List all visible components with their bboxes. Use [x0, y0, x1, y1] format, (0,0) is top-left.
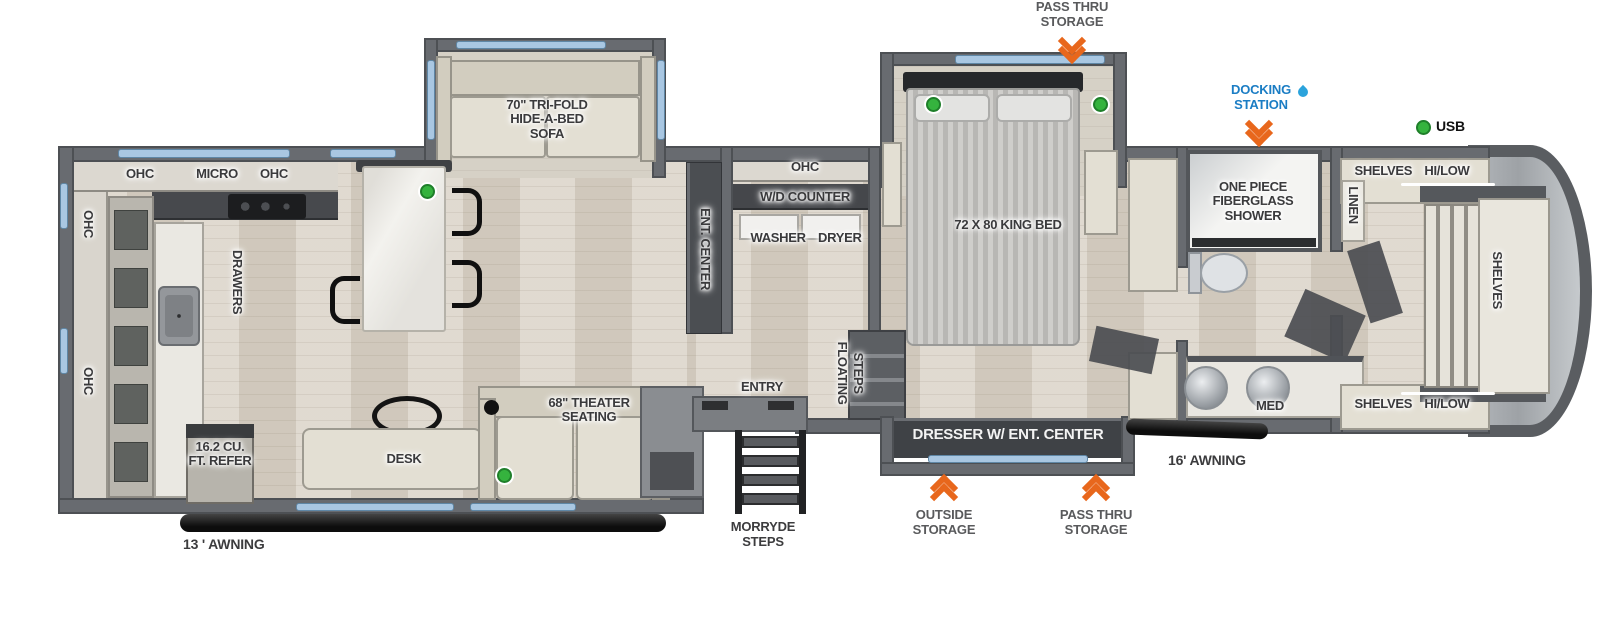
sofa-slide-window-right: [657, 60, 665, 140]
docking-station-arrow: [1246, 114, 1272, 144]
king-pillow-right: [996, 94, 1072, 122]
outside-storage-arrow: [931, 478, 957, 508]
entry-tread-left: [702, 401, 728, 410]
linen-label: LINEN: [1346, 183, 1360, 227]
cabinet-door-4: [114, 384, 148, 424]
usb-dot-bed-left: [926, 97, 941, 112]
shelves-hilow-bottom-label: SHELVES HI/LOW: [1337, 397, 1487, 411]
cabinet-door-2: [114, 268, 148, 308]
kitchen-sink-basin: [165, 295, 193, 337]
awning-13-label: 13 ' AWNING: [183, 536, 303, 552]
usb-dot-theater: [497, 468, 512, 483]
theater-cushion-left: [496, 416, 574, 500]
washer-dryer-label: WASHER DRYER: [736, 231, 876, 245]
awning-13-bar: [180, 514, 666, 532]
nightstand-left: [882, 142, 902, 227]
sofa-slide-window-left: [427, 60, 435, 140]
island-chair-1: [452, 188, 482, 236]
shelves-bottom-overline: [1401, 392, 1495, 395]
nightstand-right: [1084, 150, 1118, 235]
window-top-1: [118, 149, 290, 158]
entry-tread-right: [768, 401, 794, 410]
morryde-rail-left: [735, 430, 742, 514]
shower-sill: [1192, 238, 1316, 247]
cupholder-left: [484, 400, 499, 415]
ohc-left-upper-label: OHC: [81, 206, 95, 242]
window-top-2: [330, 149, 396, 158]
shelves-hilow-top-label: SHELVES HI/LOW: [1337, 164, 1487, 178]
pass-thru-top-arrow: [1059, 31, 1085, 61]
sofa-back: [450, 60, 640, 96]
wd-counter-label: W/D COUNTER: [745, 190, 865, 204]
dresser-label: DRESSER W/ ENT. CENTER: [898, 427, 1118, 444]
wardrobe-face: [1478, 198, 1550, 394]
sofa-label: 70" TRI-FOLD HIDE-A-BED SOFA: [494, 98, 600, 141]
refrigerator-top: [186, 424, 254, 438]
desk-label: DESK: [374, 452, 434, 466]
laundry-ohc-label: OHC: [775, 160, 835, 174]
ohc-label-a: OHC: [112, 167, 168, 181]
window-left-2: [60, 328, 68, 374]
micro-label: MICRO: [182, 167, 252, 181]
shelves-top-underline: [1401, 183, 1495, 186]
morryde-tread-4: [742, 493, 799, 505]
usb-dot-island: [420, 184, 435, 199]
cabinet-door-1: [114, 210, 148, 250]
drawers-label: DRAWERS: [230, 247, 244, 317]
window-bottom-2: [470, 503, 576, 511]
island-chair-3: [330, 276, 360, 324]
sofa-slide-window-top: [456, 41, 606, 49]
usb-label: USB: [1436, 118, 1480, 134]
ohc-label-b: OHC: [248, 167, 300, 181]
dresser-slide-window: [928, 455, 1088, 463]
morryde-tread-2: [742, 455, 799, 467]
morryde-steps-label: MORRYDE STEPS: [713, 520, 813, 550]
king-bed-label: 72 X 80 KING BED: [953, 218, 1063, 232]
theater-label: 68" THEATER SEATING: [544, 396, 634, 425]
med-cabinet-label: MED: [1245, 399, 1295, 413]
entry-label: ENTRY: [727, 380, 797, 394]
cabinet-door-5: [114, 442, 148, 482]
window-bottom-1: [296, 503, 454, 511]
ent-center-label: ENT. CENTER: [698, 205, 712, 293]
usb-dot-callout: [1416, 120, 1431, 135]
shelves-front-label: SHELVES: [1490, 249, 1504, 311]
pass-thru-bottom-label: PASS THRU STORAGE: [1046, 508, 1146, 538]
outside-storage-label: OUTSIDE STORAGE: [904, 508, 984, 538]
vanity-sink-left: [1184, 366, 1228, 410]
sofa-armrest-right: [640, 56, 656, 162]
morryde-tread-3: [742, 474, 799, 486]
cabinet-door-3: [114, 326, 148, 366]
wardrobe-steps: [1424, 204, 1480, 388]
entry-step-well-inner: [650, 452, 694, 490]
pass-thru-bottom-arrow: [1083, 478, 1109, 508]
island-chair-2: [452, 260, 482, 308]
toilet-bowl: [1200, 253, 1248, 293]
refer-label: 16.2 CU. FT. REFER: [188, 440, 252, 469]
morryde-tread-1: [742, 436, 799, 448]
floating-steps-label-1: FLOATING: [835, 340, 849, 406]
window-left-1: [60, 183, 68, 229]
awning-16-label: 16' AWNING: [1168, 452, 1288, 468]
ohc-left-lower-label: OHC: [81, 363, 95, 399]
bedroom-closet-top: [1128, 158, 1178, 292]
floating-steps-label-2: STEPS: [851, 351, 865, 395]
morryde-rail-right: [799, 430, 806, 514]
usb-dot-bed-right: [1093, 97, 1108, 112]
cooktop: [228, 194, 306, 219]
rv-floorplan: 70" TRI-FOLD HIDE-A-BED SOFA 72 X 80 KIN…: [0, 0, 1600, 618]
shower-label: ONE PIECE FIBERGLASS SHOWER: [1203, 180, 1303, 223]
king-pillow-left: [914, 94, 990, 122]
pass-thru-top-label: PASS THRU STORAGE: [1012, 0, 1132, 30]
docking-station-label: DOCKING STATION: [1222, 83, 1300, 113]
